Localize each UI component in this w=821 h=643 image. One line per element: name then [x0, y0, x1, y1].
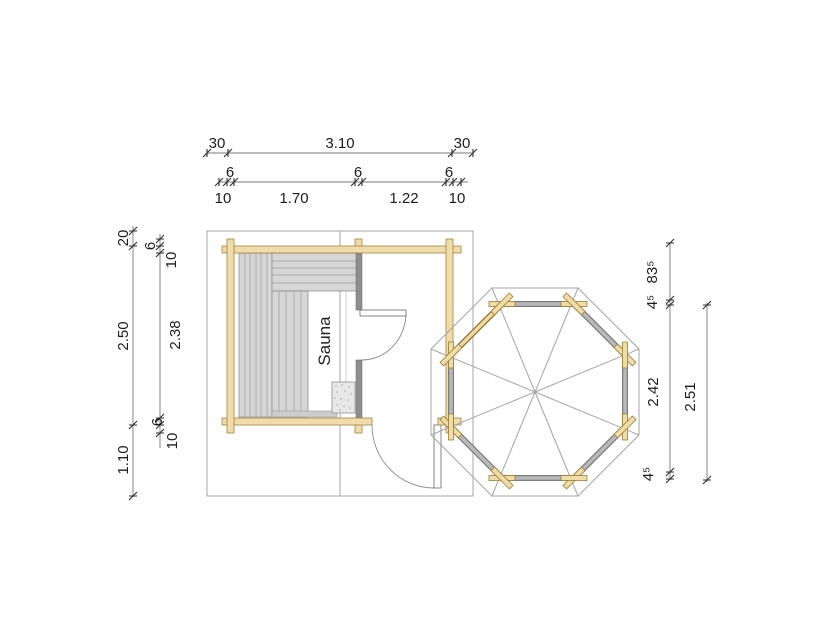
dim-interior-depth: 2.38: [167, 320, 184, 349]
dim-octagon-edge-length: 83⁵: [644, 261, 661, 284]
bench-step: [272, 411, 337, 417]
dim-terrace-depth: 1.10: [115, 445, 132, 474]
dim-wall-left-thickness: 6: [226, 164, 234, 181]
corner-log-e-bottom: [614, 414, 636, 440]
sauna-door-arc: [362, 313, 406, 360]
sauna-door-leaf: [360, 310, 406, 316]
partition-upper: [356, 253, 362, 310]
octagon-roof-ridges: [431, 288, 639, 496]
dim-sauna-width: 1.70: [279, 190, 308, 207]
dimension-annotations: 30 3.10 30 6 6 6 10 1.70 1.22 10 20 2.50…: [115, 135, 711, 500]
dim-building-depth: 2.50: [115, 321, 132, 350]
corner-log-e-top: [614, 342, 636, 368]
entrance-door-leaf: [434, 425, 441, 488]
dim-roof-overhang-right: 30: [454, 135, 471, 152]
main-building: Sauna: [207, 231, 473, 496]
bench-middle: [272, 291, 308, 417]
dim-octagon-wall-top: 4⁵: [644, 295, 661, 310]
dim-log-end-top: 10: [163, 252, 180, 269]
dim-anteroom-width: 1.22: [389, 190, 418, 207]
wall-left: [227, 239, 234, 433]
octagon-gazebo: [431, 288, 639, 496]
dim-log-end-left: 10: [215, 190, 232, 207]
room-label: Sauna: [315, 316, 334, 366]
wall-top: [222, 246, 461, 253]
dim-roof-overhang-top: 20: [115, 230, 132, 247]
dim-log-end-bottom: 10: [164, 433, 181, 450]
corner-log-n-right: [561, 293, 587, 315]
floor-plan-page: Sauna: [0, 0, 821, 643]
partition-wall: [356, 253, 406, 418]
dim-wall-right-thickness: 6: [445, 164, 453, 181]
floor-plan-drawing: Sauna: [0, 0, 821, 643]
corner-log-w-top: [440, 342, 462, 368]
dim-wall-top-thickness: 6: [142, 242, 159, 250]
dim-building-width: 3.10: [325, 135, 354, 152]
dim-octagon-inner-width: 2.42: [645, 377, 662, 406]
dim-octagon-outer-width: 2.51: [682, 382, 699, 411]
partition-lower: [356, 360, 362, 418]
dim-roof-overhang-left: 30: [209, 135, 226, 152]
dim-wall-bottom-thickness: 6: [149, 418, 166, 426]
dim-log-end-right: 10: [449, 190, 466, 207]
bench-top: [272, 253, 359, 291]
corner-log-s-left: [489, 467, 515, 489]
dim-octagon-wall-bottom: 4⁵: [640, 467, 657, 482]
wall-bottom-left: [222, 418, 372, 425]
sauna-heater: [332, 382, 355, 413]
entrance-door-arc: [372, 425, 434, 488]
dim-wall-mid-thickness: 6: [354, 164, 362, 181]
